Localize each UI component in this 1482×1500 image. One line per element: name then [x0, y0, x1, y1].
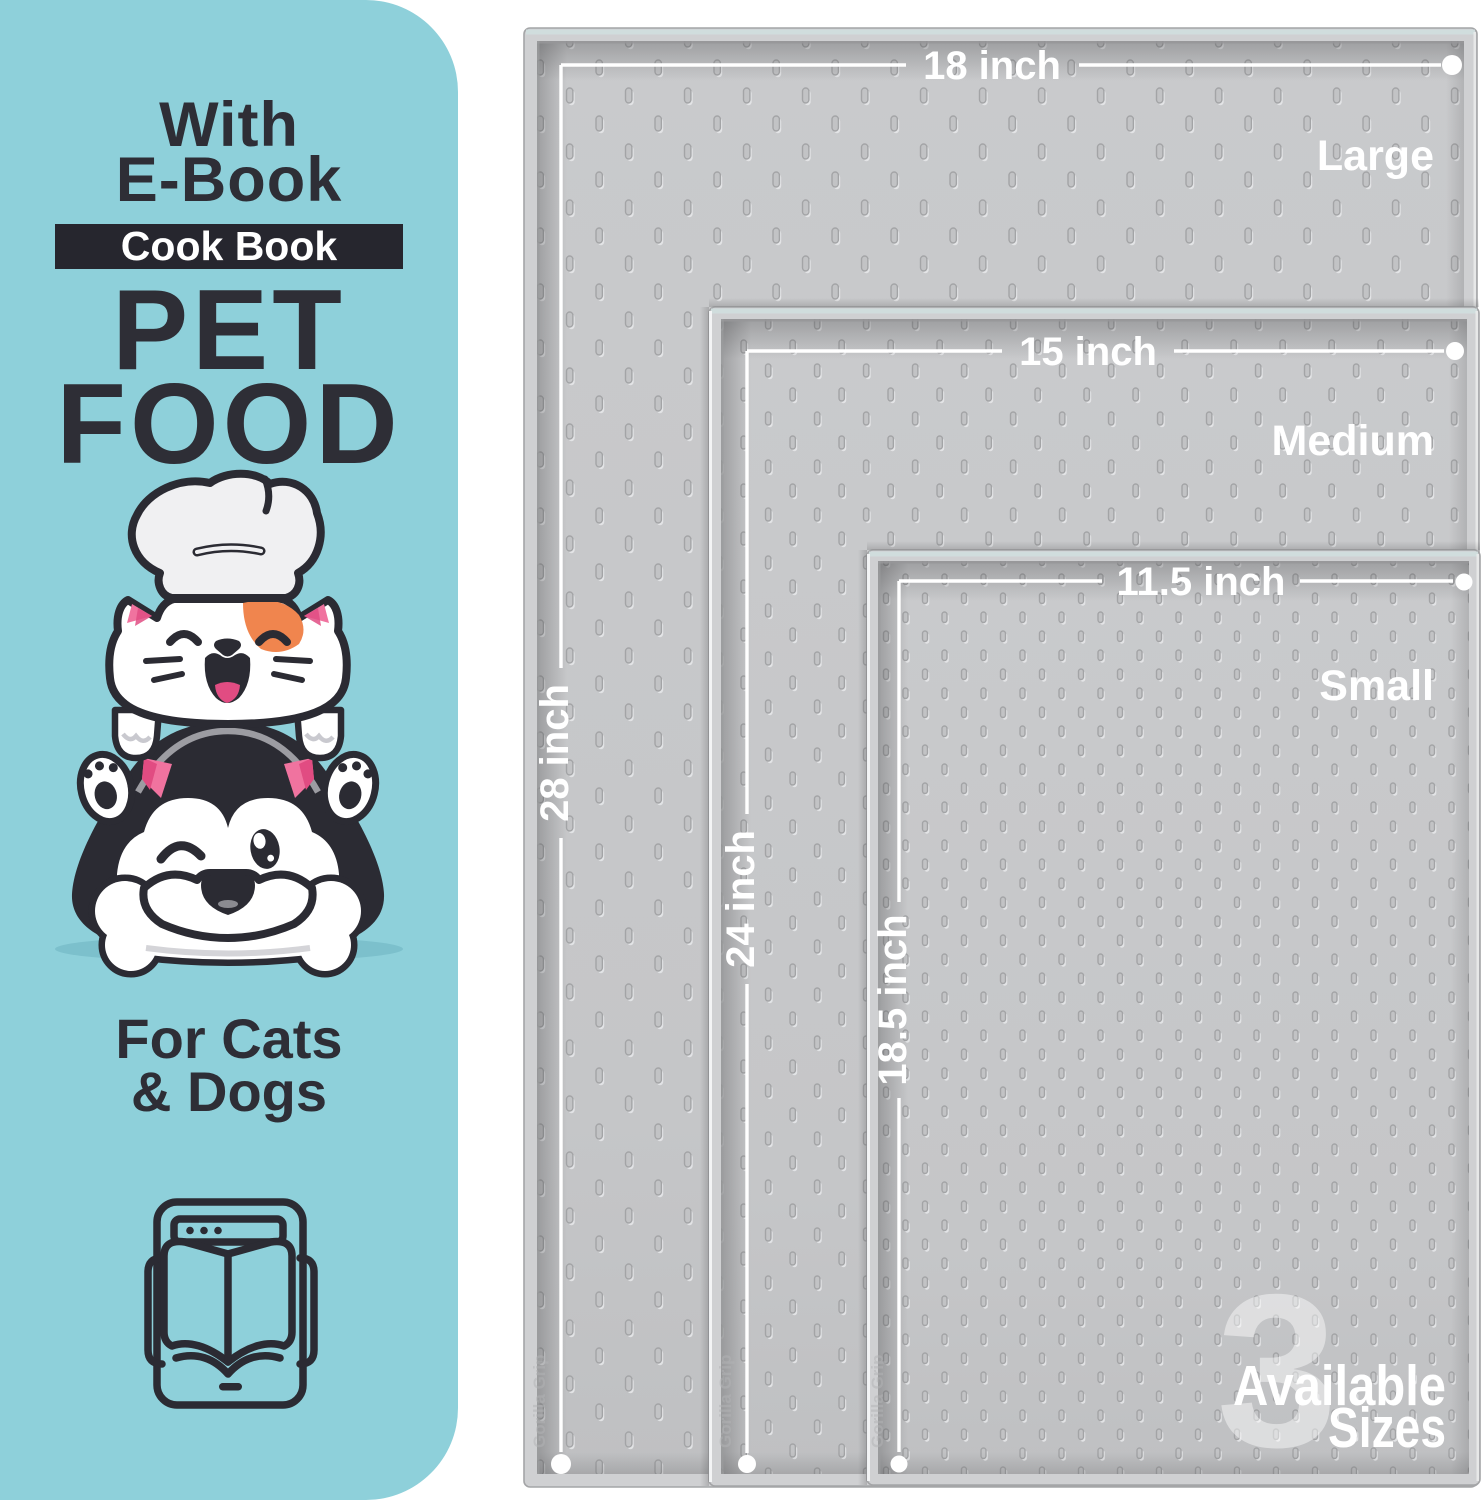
svg-text:15 inch: 15 inch — [1019, 330, 1157, 374]
svg-text:18 inch: 18 inch — [923, 44, 1061, 88]
svg-text:28 inch: 28 inch — [533, 684, 577, 822]
svg-text:Large: Large — [1317, 132, 1434, 180]
svg-text:Gorilla Grip: Gorilla Grip — [868, 1354, 887, 1448]
svg-text:Sizes: Sizes — [1328, 1396, 1446, 1460]
svg-text:11.5 inch: 11.5 inch — [1117, 560, 1286, 604]
svg-text:18.5 inch: 18.5 inch — [871, 914, 915, 1085]
svg-text:Gorilla Grip: Gorilla Grip — [530, 1354, 549, 1448]
svg-text:Small: Small — [1319, 662, 1434, 710]
svg-text:Gorilla Grip: Gorilla Grip — [716, 1354, 735, 1448]
svg-text:24 inch: 24 inch — [719, 830, 763, 968]
svg-text:Medium: Medium — [1272, 417, 1434, 465]
